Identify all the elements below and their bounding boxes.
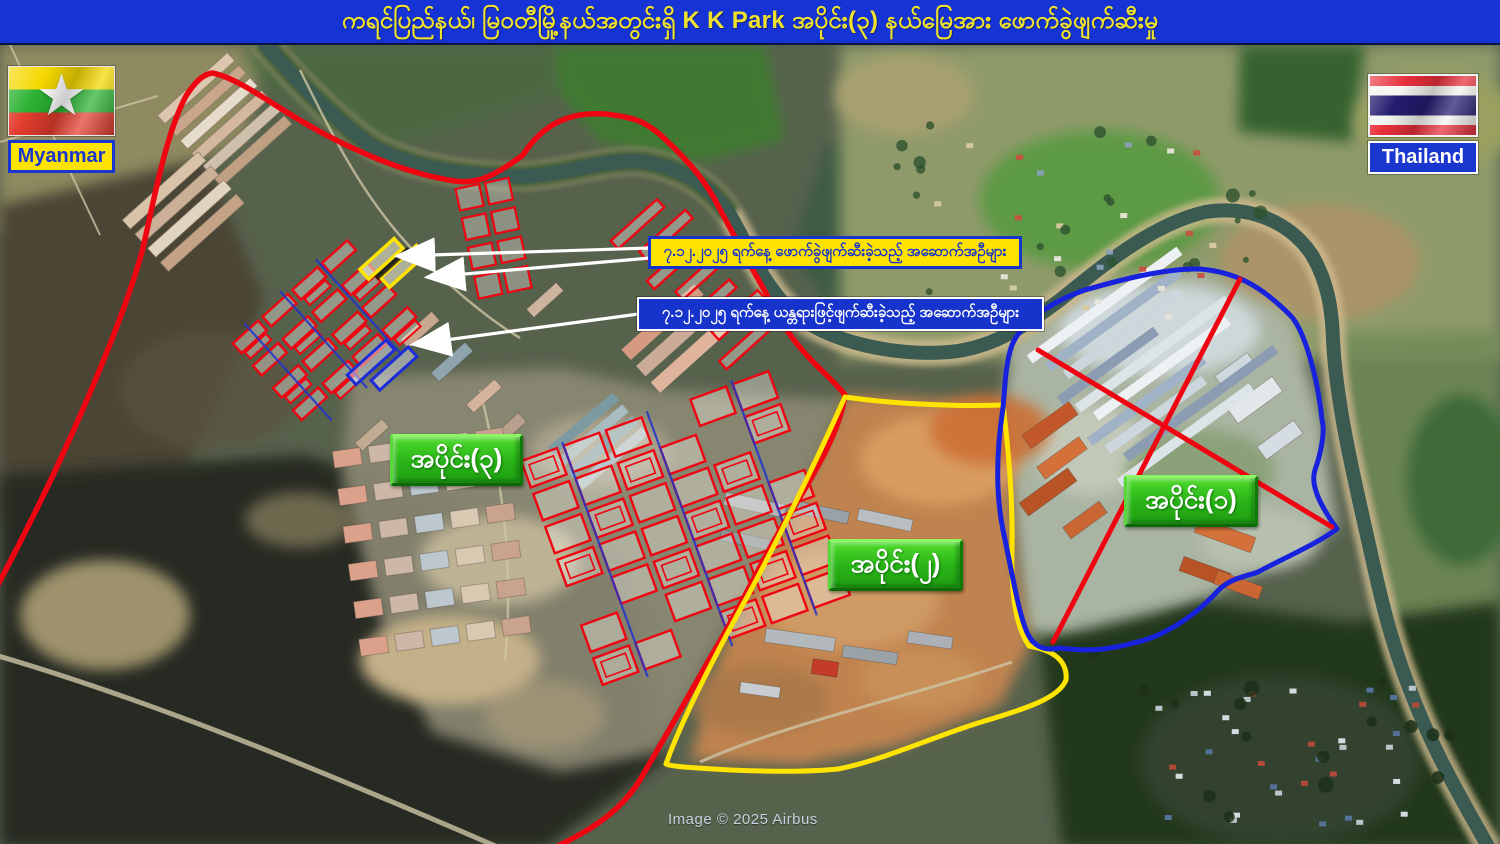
infographic: ကရင်ပြည်နယ်၊ မြဝတီမြို့နယ်အတွင်းရှိ K K … xyxy=(0,0,1500,844)
page-title: ကရင်ပြည်နယ်၊ မြဝတီမြို့နယ်အတွင်းရှိ K K … xyxy=(342,4,1158,40)
thailand-label: Thailand xyxy=(1368,141,1478,174)
callout-blast-demolished: ၇.၁၂.၂၀၂၅ ရက်နေ့ ဖောက်ခွဲဖျက်ဆီးခဲ့သည့် … xyxy=(648,236,1022,269)
myanmar-label: Myanmar xyxy=(8,140,115,173)
section-1-label: အပိုင်း(၁) xyxy=(1124,475,1258,527)
image-attribution: Image © 2025 Airbus xyxy=(668,811,818,828)
myanmar-flag: ★ xyxy=(8,66,115,136)
section-2-label: အပိုင်း(၂) xyxy=(828,539,963,591)
satellite-map xyxy=(0,45,1500,844)
callout-machine-demolished: ၇.၁၂.၂၀၂၅ ရက်နေ့ ယန္တရားဖြင့်ဖျက်ဆီးခဲ့သ… xyxy=(637,297,1044,331)
section-3-label: အပိုင်း(၃) xyxy=(390,434,523,486)
title-bar: ကရင်ပြည်နယ်၊ မြဝတီမြို့နယ်အတွင်းရှိ K K … xyxy=(0,0,1500,45)
thailand-flag xyxy=(1368,74,1478,137)
myanmar-flag-star-icon: ★ xyxy=(9,61,114,129)
